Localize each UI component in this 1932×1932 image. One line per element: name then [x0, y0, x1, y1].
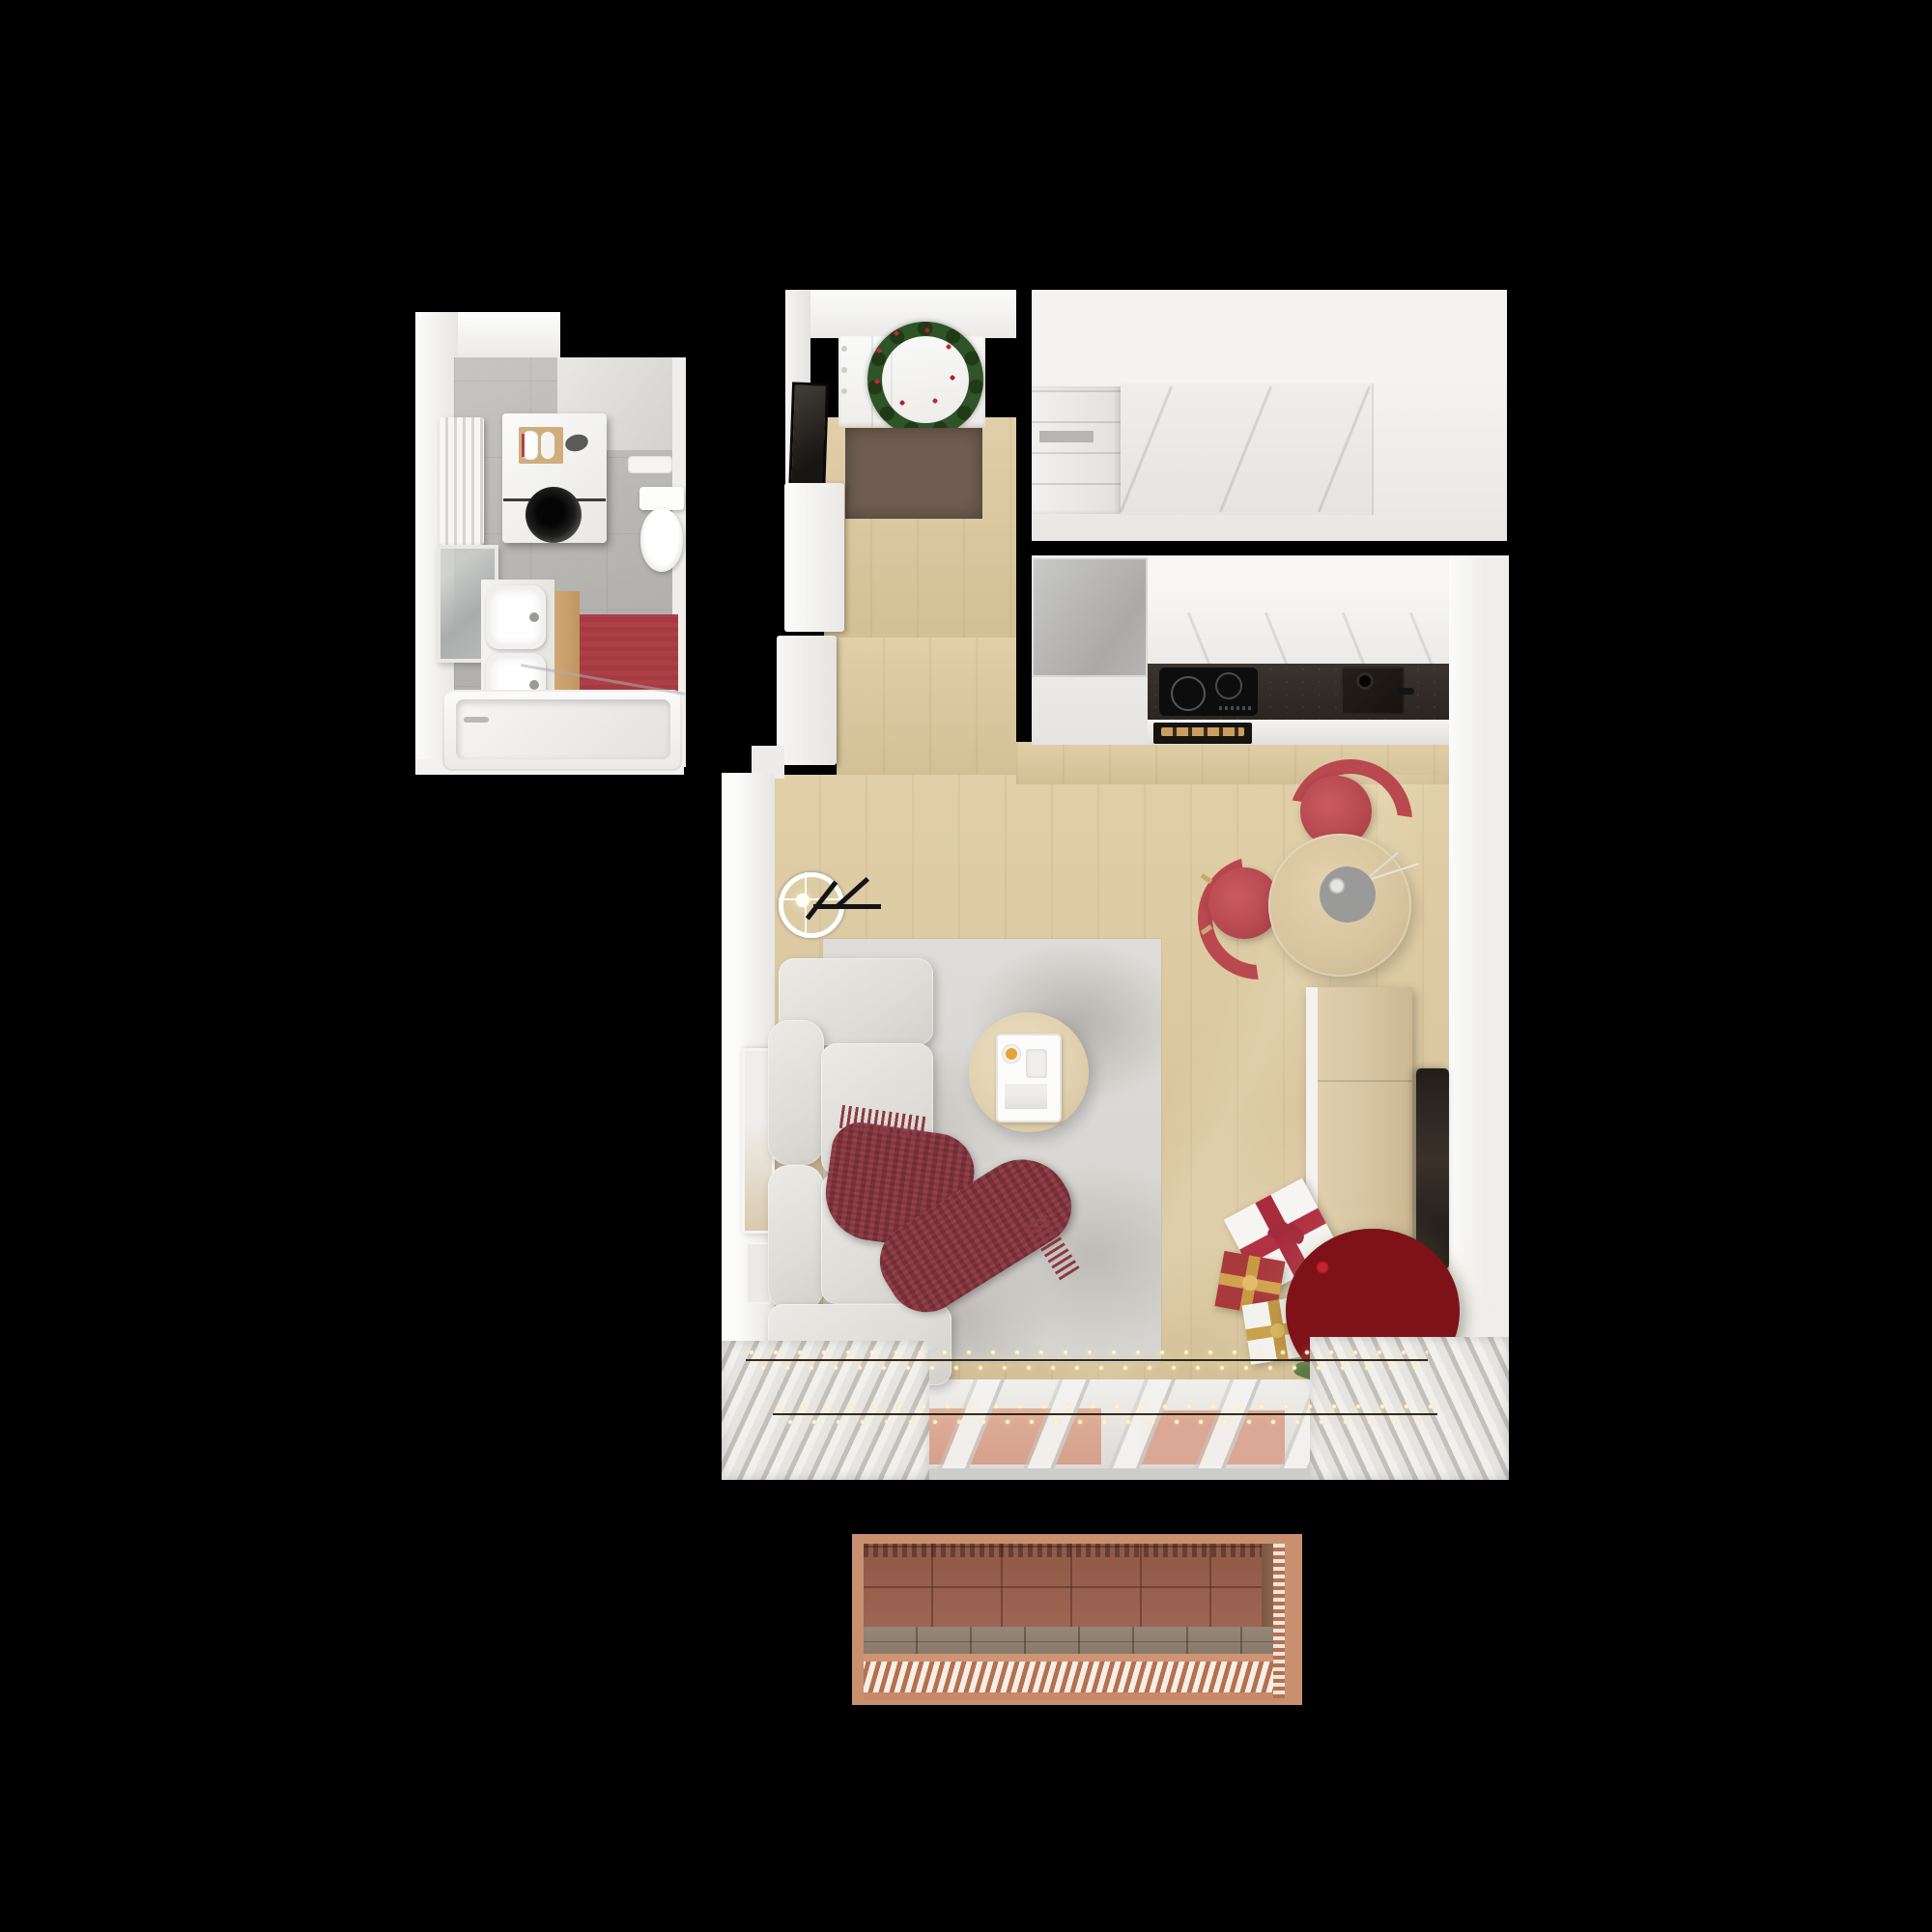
small-pot [1026, 1049, 1047, 1078]
gift-bow [1242, 1275, 1258, 1291]
lamp-arm [813, 904, 881, 909]
fridge [1032, 557, 1148, 677]
shoe-cabinet [777, 636, 837, 765]
string-lights [746, 1345, 1428, 1378]
kitchen-sink [1341, 667, 1405, 715]
railing-slats [864, 1662, 1285, 1692]
bathtub-faucet [464, 717, 489, 723]
door-hinge [841, 388, 847, 394]
oven-wood-handle [1161, 727, 1244, 736]
wood-sideboard [1306, 987, 1412, 1246]
wall-tv [1416, 1068, 1449, 1269]
coffee-cup [1003, 1045, 1020, 1063]
sofa-back-cushion [768, 1020, 824, 1165]
doormat [845, 428, 982, 519]
ornament-bowl [1320, 867, 1376, 923]
leaning-mirror [788, 382, 829, 498]
towel-roll [541, 432, 554, 459]
toilet-bowl [640, 508, 683, 572]
lamp-cross-bar [779, 898, 844, 900]
corridor-floor [837, 638, 1016, 782]
red-bath-mat [580, 614, 678, 699]
door-hinge [841, 367, 847, 373]
apartment-floorplan-render [0, 0, 1932, 1932]
door-hinge [841, 346, 847, 352]
railing-bottom-rail [864, 1692, 1285, 1700]
sofa-back-cushion [768, 1165, 824, 1310]
radiator [440, 417, 484, 545]
balcony-plank-floor [864, 1627, 1285, 1654]
tray-book [1005, 1084, 1047, 1109]
sink-drain [1356, 672, 1374, 690]
string-lights [773, 1399, 1437, 1432]
toilet-tank [639, 487, 684, 510]
railing-shadow [864, 1544, 1285, 1557]
shoe-cabinet [784, 483, 844, 632]
hob-burner [1215, 672, 1242, 699]
lamp-bulb [796, 894, 810, 907]
christmas-wreath [867, 322, 983, 438]
washer-drum [526, 487, 582, 543]
gift-bow [1270, 1323, 1285, 1338]
wall-corner-line [1372, 384, 1374, 515]
railing-top-rail [864, 1654, 1285, 1662]
hob-burner [1171, 676, 1206, 711]
flush-plate [628, 456, 672, 473]
balcony-railing [864, 1662, 1285, 1692]
open-shelf-unit [1032, 386, 1121, 514]
bathtub-interior [456, 699, 670, 759]
shelf-slot [1039, 431, 1094, 442]
kitchen-faucet [1399, 688, 1414, 695]
towel-roll [523, 431, 538, 460]
sink-basin [486, 585, 546, 649]
railing-side-slats [1273, 1544, 1285, 1698]
towel-stripe [522, 434, 525, 457]
hob-controls [1219, 706, 1252, 710]
